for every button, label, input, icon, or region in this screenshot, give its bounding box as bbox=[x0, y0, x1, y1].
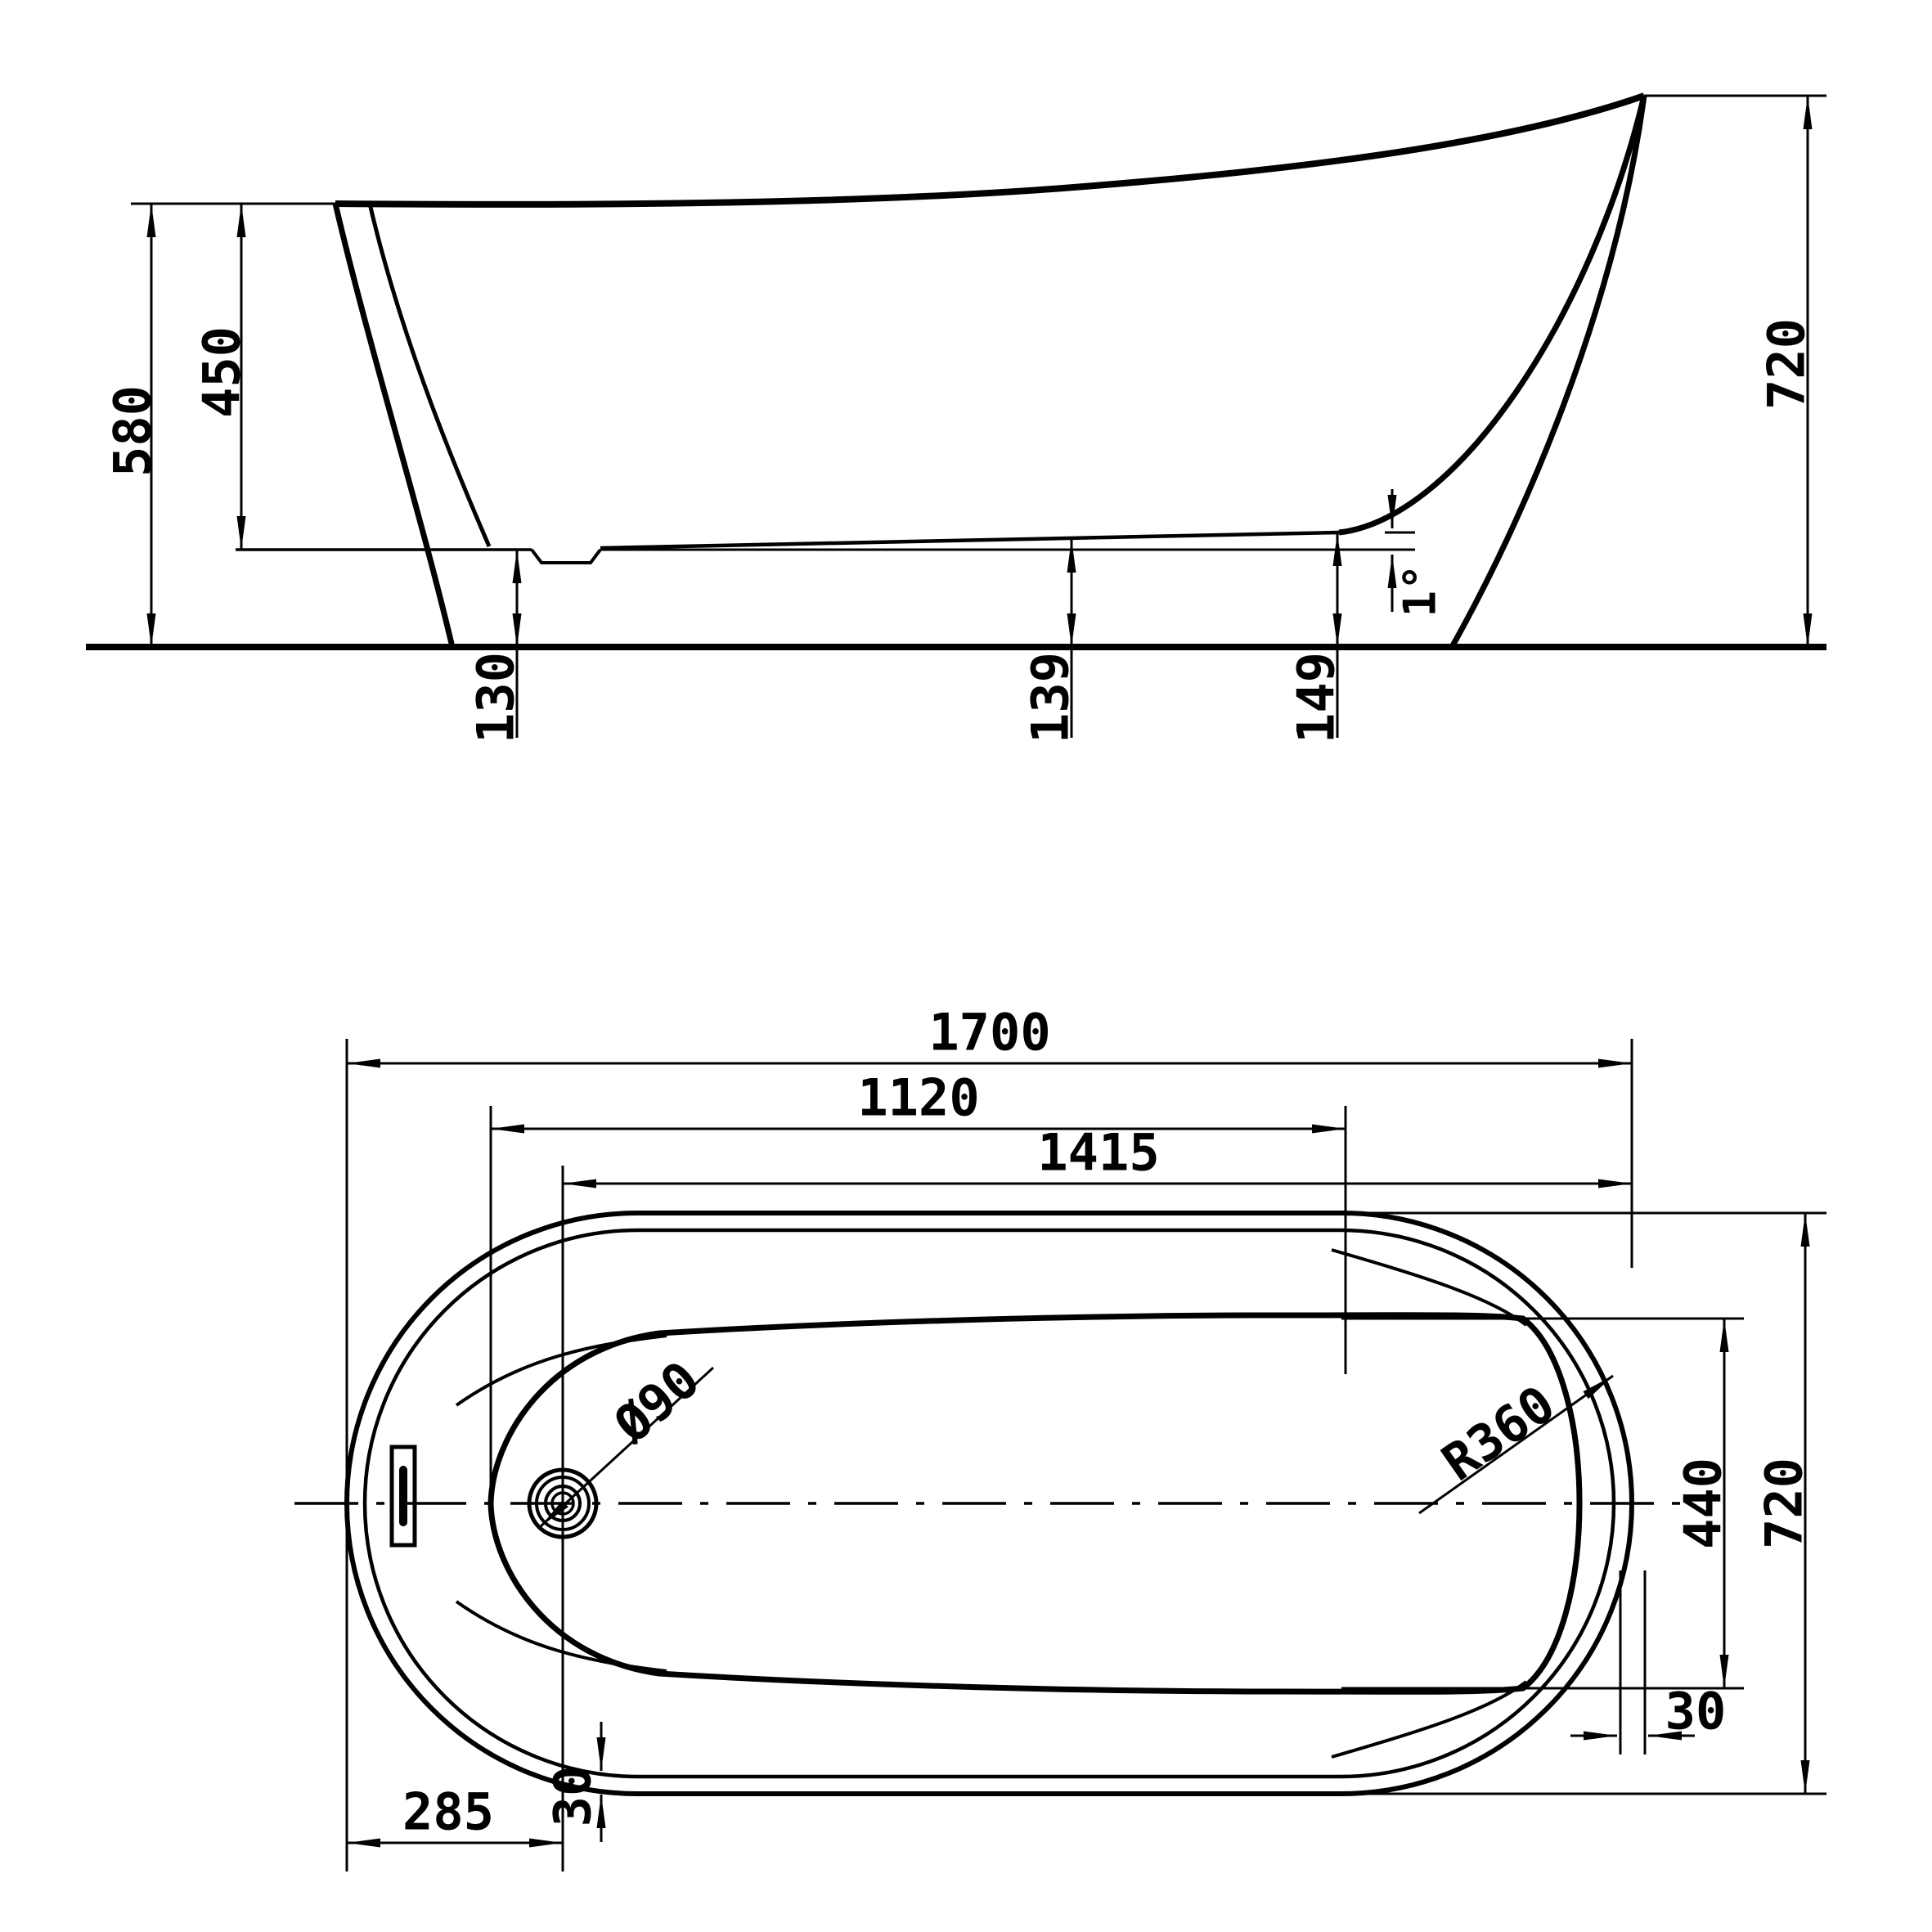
dim-label-285: 285 bbox=[402, 1782, 494, 1842]
back-wall-outer bbox=[1452, 96, 1644, 647]
dim-label-1700: 1700 bbox=[928, 1003, 1050, 1063]
dim-label-580: 580 bbox=[103, 385, 163, 477]
back-wall-inner bbox=[1339, 96, 1644, 532]
dim-label-30-right: 30 bbox=[1665, 1682, 1727, 1741]
dim-30-bottom: 30 bbox=[543, 1722, 603, 1842]
dim-label-1deg: 1° bbox=[1395, 564, 1446, 617]
dim-angle-1deg: 1° bbox=[1385, 489, 1446, 618]
drain-recess-notch bbox=[532, 550, 600, 563]
dim-label-130: 130 bbox=[466, 652, 526, 744]
dim-label-720-side: 720 bbox=[1757, 318, 1817, 410]
floor-line-sloped bbox=[600, 532, 1339, 548]
dim-label-1120: 1120 bbox=[857, 1068, 979, 1128]
plan-view: 1700 1120 1415 Ø90 bbox=[294, 1003, 1826, 1872]
dim-label-450: 450 bbox=[192, 326, 252, 418]
dim-label-720-plan: 720 bbox=[1755, 1458, 1814, 1549]
dim-30-right: 30 bbox=[1570, 1570, 1726, 1755]
dim-label-back-radius: R360 bbox=[1431, 1373, 1566, 1492]
drawing-sheet: 580 450 130 139 149 1° 720 bbox=[0, 0, 1932, 1932]
side-view: 580 450 130 139 149 1° 720 bbox=[86, 96, 1826, 744]
front-wall-outer bbox=[335, 204, 452, 647]
front-wall-inner bbox=[370, 204, 489, 546]
dim-label-440: 440 bbox=[1674, 1458, 1733, 1549]
dim-label-30-bottom: 30 bbox=[543, 1766, 603, 1827]
dim-label-139: 139 bbox=[1021, 652, 1081, 744]
overflow-fitting bbox=[392, 1447, 415, 1545]
dim-label-1415: 1415 bbox=[1037, 1123, 1159, 1183]
bathtub-technical-drawing: 580 450 130 139 149 1° 720 bbox=[0, 0, 1932, 1932]
tub-rim-profile bbox=[335, 96, 1644, 204]
dim-label-drain-diameter: Ø90 bbox=[602, 1350, 711, 1455]
dim-label-149: 149 bbox=[1287, 652, 1346, 744]
